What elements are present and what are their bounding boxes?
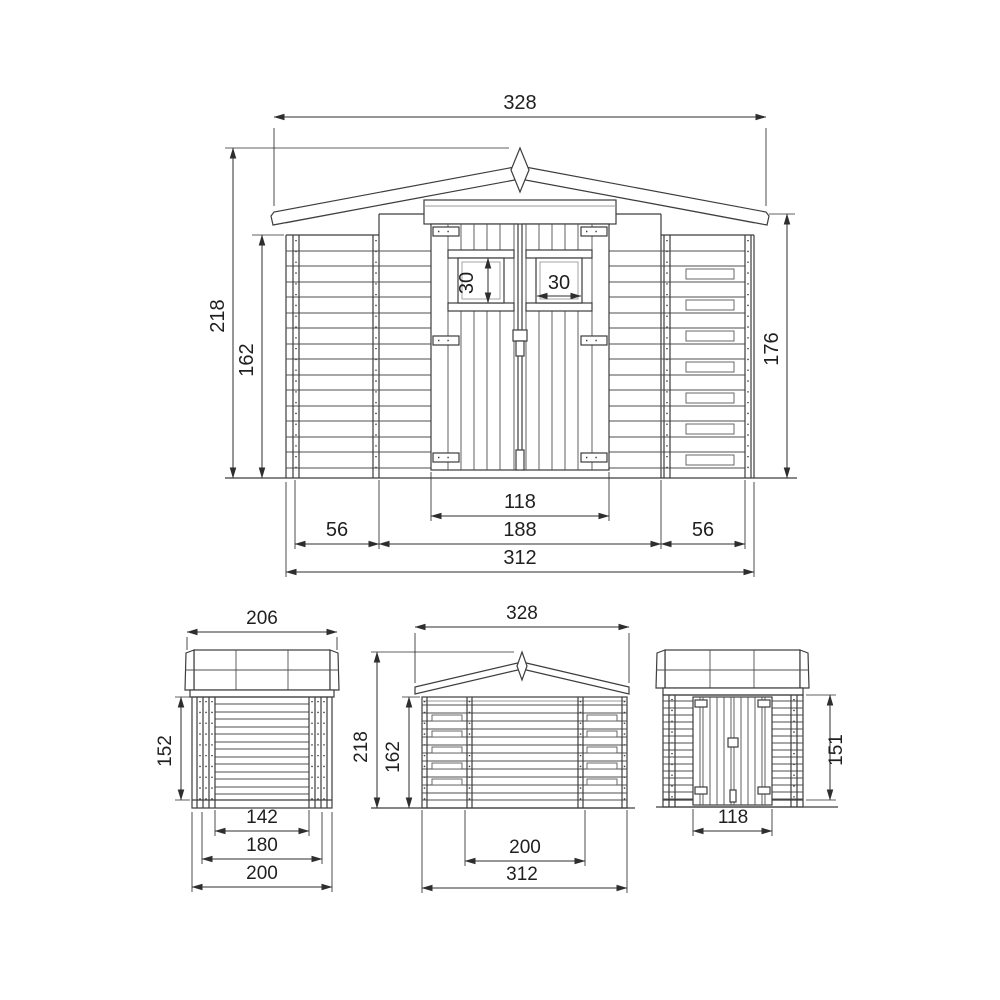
shed-technical-drawing: 328 218 162 176 30 30 118 188 56 56 [0,0,1000,1000]
dim-label-door-width: 118 [718,807,748,828]
corner-log-strips [197,697,327,808]
door-view-doors [693,697,772,805]
door-lock [728,738,738,747]
dim-label-roof-depth: 206 [246,608,278,629]
right-wall-slats [661,251,745,468]
dim-label-base-width: 312 [506,864,538,885]
right-frame-strip-slats [609,251,661,468]
ext-roof-depth [187,637,337,650]
left-wall-slats [286,251,379,468]
dim-label-roof-width: 328 [503,92,536,114]
dim-label-total-height: 218 [207,299,229,332]
roof-bargeboard-left [415,662,522,694]
window-bottom-rail [448,303,514,311]
top-plate [190,690,334,697]
dim-label-base-depth: 200 [246,863,278,884]
roof-band [665,650,800,688]
dim-label-wall-height: 162 [236,343,258,376]
dim-label-side-height: 176 [761,332,783,365]
dim-label-wall-height: 152 [155,735,176,767]
side-wall [192,697,332,808]
dim-label-base-width: 312 [503,547,536,569]
door-bolt [516,450,524,470]
dim-label-left-panel-width: 56 [326,519,348,541]
dim-label-inner-width: 200 [509,837,541,858]
dim-label-total-height: 218 [351,731,372,763]
roof-finial-diamond [511,148,529,192]
dim-label-mid-depth: 180 [246,835,278,856]
lock-body [516,341,524,356]
dim-label-window-height: 30 [456,272,478,294]
side-roof [185,650,339,697]
window-top-rail [526,250,592,258]
back-roof [415,652,629,694]
back-view: 328 218 162 200 312 [351,603,635,893]
dim-label-inner-depth: 142 [246,807,278,828]
dim-label-right-panel-width: 56 [692,519,714,541]
door-view-roof [656,650,809,695]
back-wall [422,697,627,808]
wall-slats [215,704,309,794]
left-frame-strip-slats [379,251,431,468]
roof-cap-left [656,650,665,688]
shed-technical-drawing-page: 328 218 162 176 30 30 118 188 56 56 [0,0,1000,1000]
roof-finial-diamond [517,652,527,680]
wall-outline [192,697,332,808]
dim-label-window-width: 30 [548,272,570,294]
side-view: 206 152 142 180 200 [155,608,339,892]
roof-cap-right [800,650,809,688]
corner-dowel-dots [200,701,324,806]
front-doors [424,200,616,470]
door-bolt [730,790,736,802]
right-wall-slats [772,701,803,799]
door-view: 151 118 [656,650,847,836]
window-bottom-rail [526,303,592,311]
dim-label-wall-height: 162 [383,741,404,773]
top-plate [663,688,803,695]
door-header [424,200,616,224]
front-view: 328 218 162 176 30 30 118 188 56 56 [207,92,797,577]
window-top-rail [448,250,514,258]
ext-wall-height [175,697,190,800]
left-wall-slats [663,701,693,799]
dim-label-roof-width: 328 [506,603,538,624]
right-wall-log-ends [686,269,734,465]
dim-label-door-section-width: 188 [503,519,536,541]
dim-label-door-height: 151 [826,734,847,766]
log-end-insets [432,715,617,785]
lock-hasp [513,330,527,341]
dim-label-door-width: 118 [504,491,536,513]
roof-bargeboard-right [522,662,629,694]
